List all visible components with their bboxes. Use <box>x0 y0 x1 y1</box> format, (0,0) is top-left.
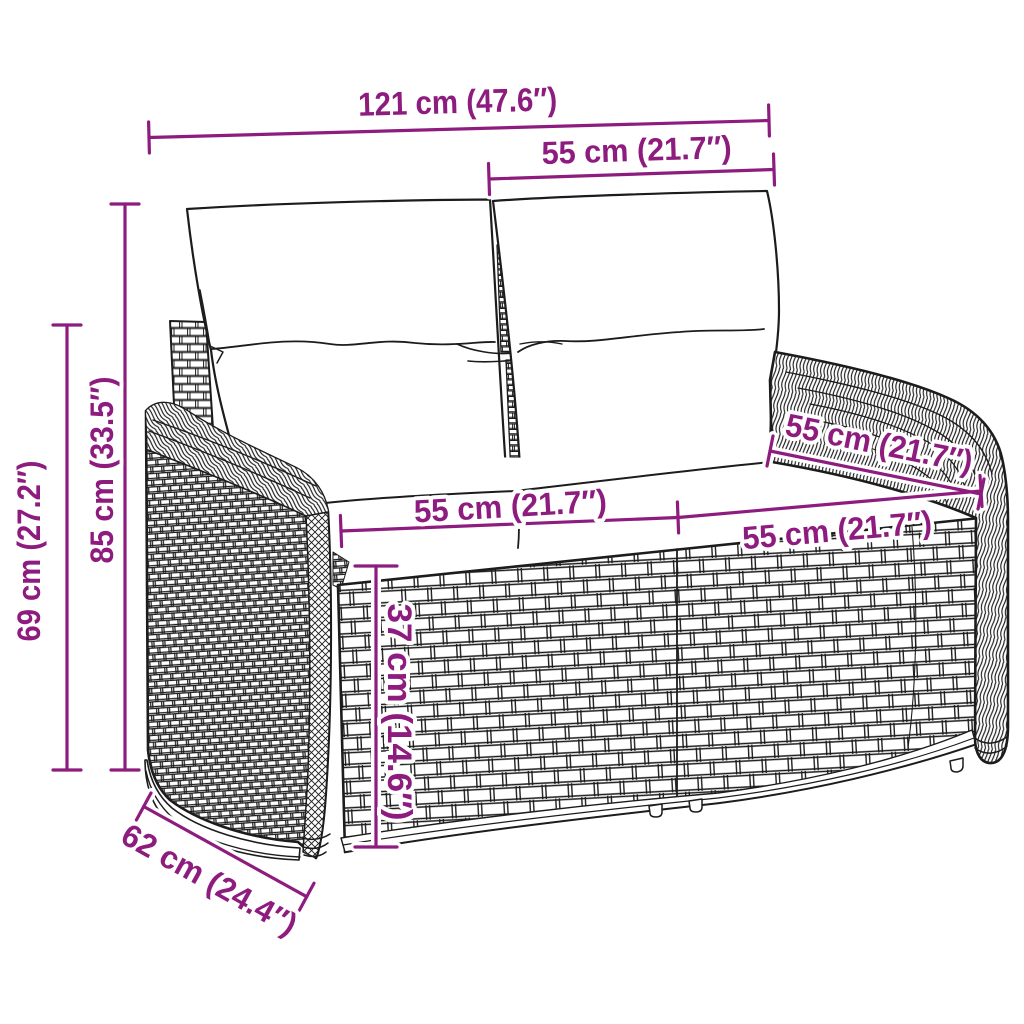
svg-text:69 cm (27.2″): 69 cm (27.2″) <box>11 461 47 642</box>
svg-text:85 cm (33.5″): 85 cm (33.5″) <box>84 377 120 564</box>
svg-text:121 cm (47.6″): 121 cm (47.6″) <box>358 80 558 123</box>
svg-text:55 cm (21.7″): 55 cm (21.7″) <box>541 129 732 171</box>
svg-text:37 cm (14.6″): 37 cm (14.6″) <box>380 604 418 821</box>
